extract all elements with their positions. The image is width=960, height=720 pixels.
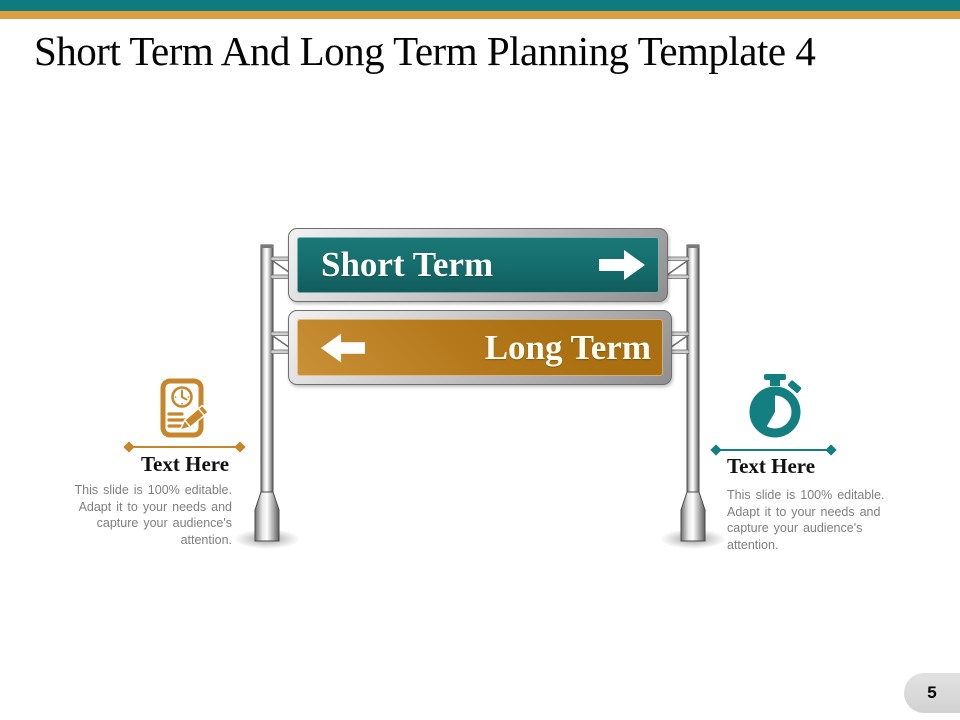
feature-description-left[interactable]: This slide is 100% editable. Adapt it to…	[52, 482, 232, 548]
slide-canvas: Short Term And Long Term Planning Templa…	[0, 0, 960, 720]
feature-description-right[interactable]: This slide is 100% editable. Adapt it to…	[727, 487, 907, 553]
top-accent-bar-orange	[0, 11, 960, 19]
divider-orange	[127, 446, 242, 448]
divider-teal	[714, 449, 833, 451]
sign-long-term[interactable]: Long Term	[288, 310, 672, 385]
document-clock-pencil-icon[interactable]	[155, 378, 215, 440]
sign-short-term[interactable]: Short Term	[288, 228, 668, 302]
arrow-left-icon	[319, 331, 365, 365]
feature-title-left[interactable]: Text Here	[120, 452, 250, 477]
signpost-pole-right	[658, 242, 728, 552]
sign-bracket-right-top	[665, 252, 689, 284]
feature-title-right[interactable]: Text Here	[727, 454, 897, 479]
page-number-badge: 5	[904, 673, 960, 713]
sign-long-term-label: Long Term	[485, 328, 651, 368]
sign-long-term-panel: Long Term	[297, 319, 663, 376]
sign-short-term-panel: Short Term	[297, 237, 659, 293]
top-accent-bar-teal	[0, 0, 960, 11]
arrow-right-icon	[599, 248, 647, 282]
sign-short-term-label: Short Term	[321, 245, 493, 285]
page-number: 5	[927, 683, 936, 703]
stopwatch-icon[interactable]	[743, 373, 807, 439]
page-title[interactable]: Short Term And Long Term Planning Templa…	[34, 27, 815, 75]
